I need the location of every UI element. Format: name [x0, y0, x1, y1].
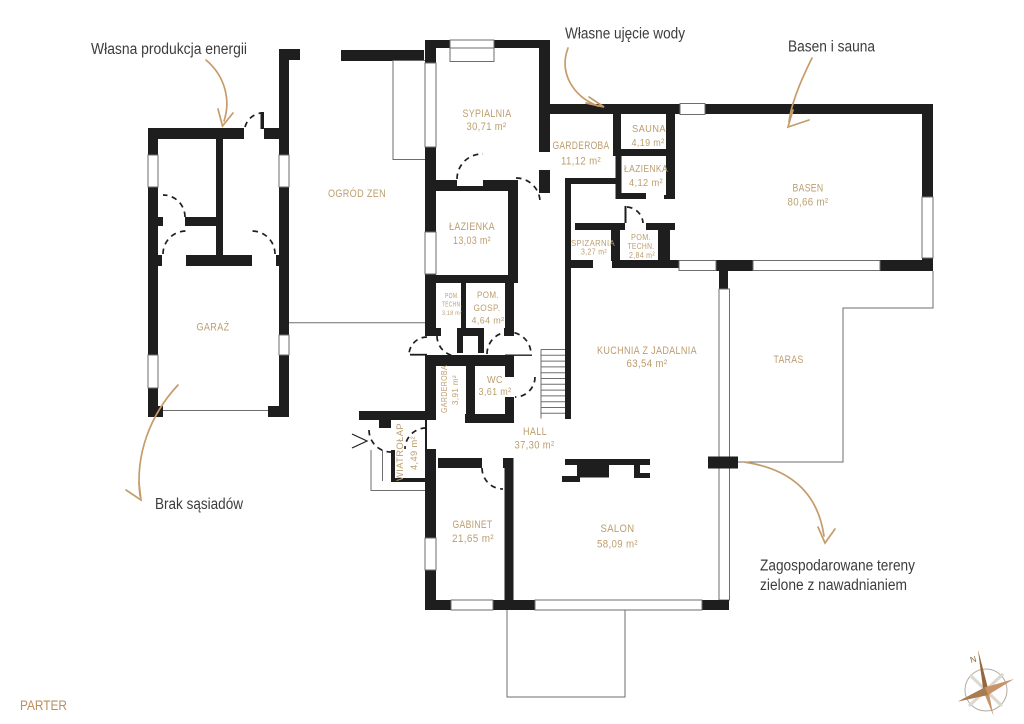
svg-text:GOSP.: GOSP.: [474, 303, 501, 314]
svg-text:GARDEROBA: GARDEROBA: [440, 365, 449, 413]
svg-text:63,54 m²: 63,54 m²: [627, 358, 668, 370]
svg-text:37,30 m²: 37,30 m²: [515, 440, 555, 452]
svg-text:4,19 m²: 4,19 m²: [632, 137, 665, 149]
svg-text:WC: WC: [487, 375, 503, 386]
svg-text:KUCHNIA Z JADALNIA: KUCHNIA Z JADALNIA: [597, 345, 697, 357]
svg-text:SYPIALNIA: SYPIALNIA: [463, 108, 512, 120]
svg-text:BASEN: BASEN: [793, 183, 824, 195]
svg-text:58,09 m²: 58,09 m²: [597, 539, 638, 551]
svg-text:GARDEROBA: GARDEROBA: [553, 140, 610, 152]
svg-text:POM.: POM.: [445, 293, 459, 300]
svg-text:Basen i sauna: Basen i sauna: [788, 39, 875, 56]
svg-text:4,64 m²: 4,64 m²: [472, 316, 505, 327]
svg-text:30,71 m²: 30,71 m²: [467, 121, 507, 133]
svg-text:POM.: POM.: [477, 290, 499, 301]
svg-text:SPIZARNIA: SPIZARNIA: [571, 238, 615, 248]
svg-text:Brak sąsiadów: Brak sąsiadów: [155, 496, 244, 513]
svg-text:ŁAZIENKA: ŁAZIENKA: [624, 164, 668, 175]
svg-text:SAUNA: SAUNA: [632, 123, 666, 135]
svg-text:OGRÓD ZEN: OGRÓD ZEN: [328, 187, 386, 200]
svg-text:GABINET: GABINET: [453, 519, 493, 531]
svg-text:21,65 m²: 21,65 m²: [452, 533, 494, 545]
svg-text:TECHN.: TECHN.: [442, 302, 462, 309]
svg-text:3,27 m²: 3,27 m²: [581, 248, 607, 257]
svg-text:GARAŻ: GARAŻ: [197, 321, 230, 334]
svg-text:4,12 m²: 4,12 m²: [629, 178, 663, 189]
svg-text:Własne ujęcie wody: Własne ujęcie wody: [565, 26, 685, 43]
svg-text:4,49 m²: 4,49 m²: [409, 436, 420, 470]
svg-text:SALON: SALON: [601, 523, 635, 535]
svg-text:3,91 m²: 3,91 m²: [451, 375, 460, 405]
svg-text:N: N: [969, 654, 978, 665]
svg-text:Własna produkcja energii: Własna produkcja energii: [91, 41, 247, 58]
svg-text:PARTER: PARTER: [20, 698, 67, 713]
svg-text:13,03 m²: 13,03 m²: [453, 235, 491, 247]
svg-text:zielone z nawadnianiem: zielone z nawadnianiem: [760, 577, 907, 594]
svg-text:WIATROŁAP: WIATROŁAP: [395, 423, 406, 481]
svg-text:ŁAZIENKA: ŁAZIENKA: [449, 221, 495, 233]
svg-text:Zagospodarowane tereny: Zagospodarowane tereny: [760, 558, 915, 575]
svg-text:2,84 m²: 2,84 m²: [629, 250, 655, 260]
svg-text:80,66 m²: 80,66 m²: [788, 197, 829, 209]
svg-text:HALL: HALL: [523, 426, 547, 438]
svg-text:TARAS: TARAS: [774, 354, 804, 366]
svg-text:3,61 m²: 3,61 m²: [479, 387, 512, 398]
svg-text:11,12 m²: 11,12 m²: [561, 156, 601, 168]
svg-text:3,18 m²: 3,18 m²: [442, 310, 462, 317]
